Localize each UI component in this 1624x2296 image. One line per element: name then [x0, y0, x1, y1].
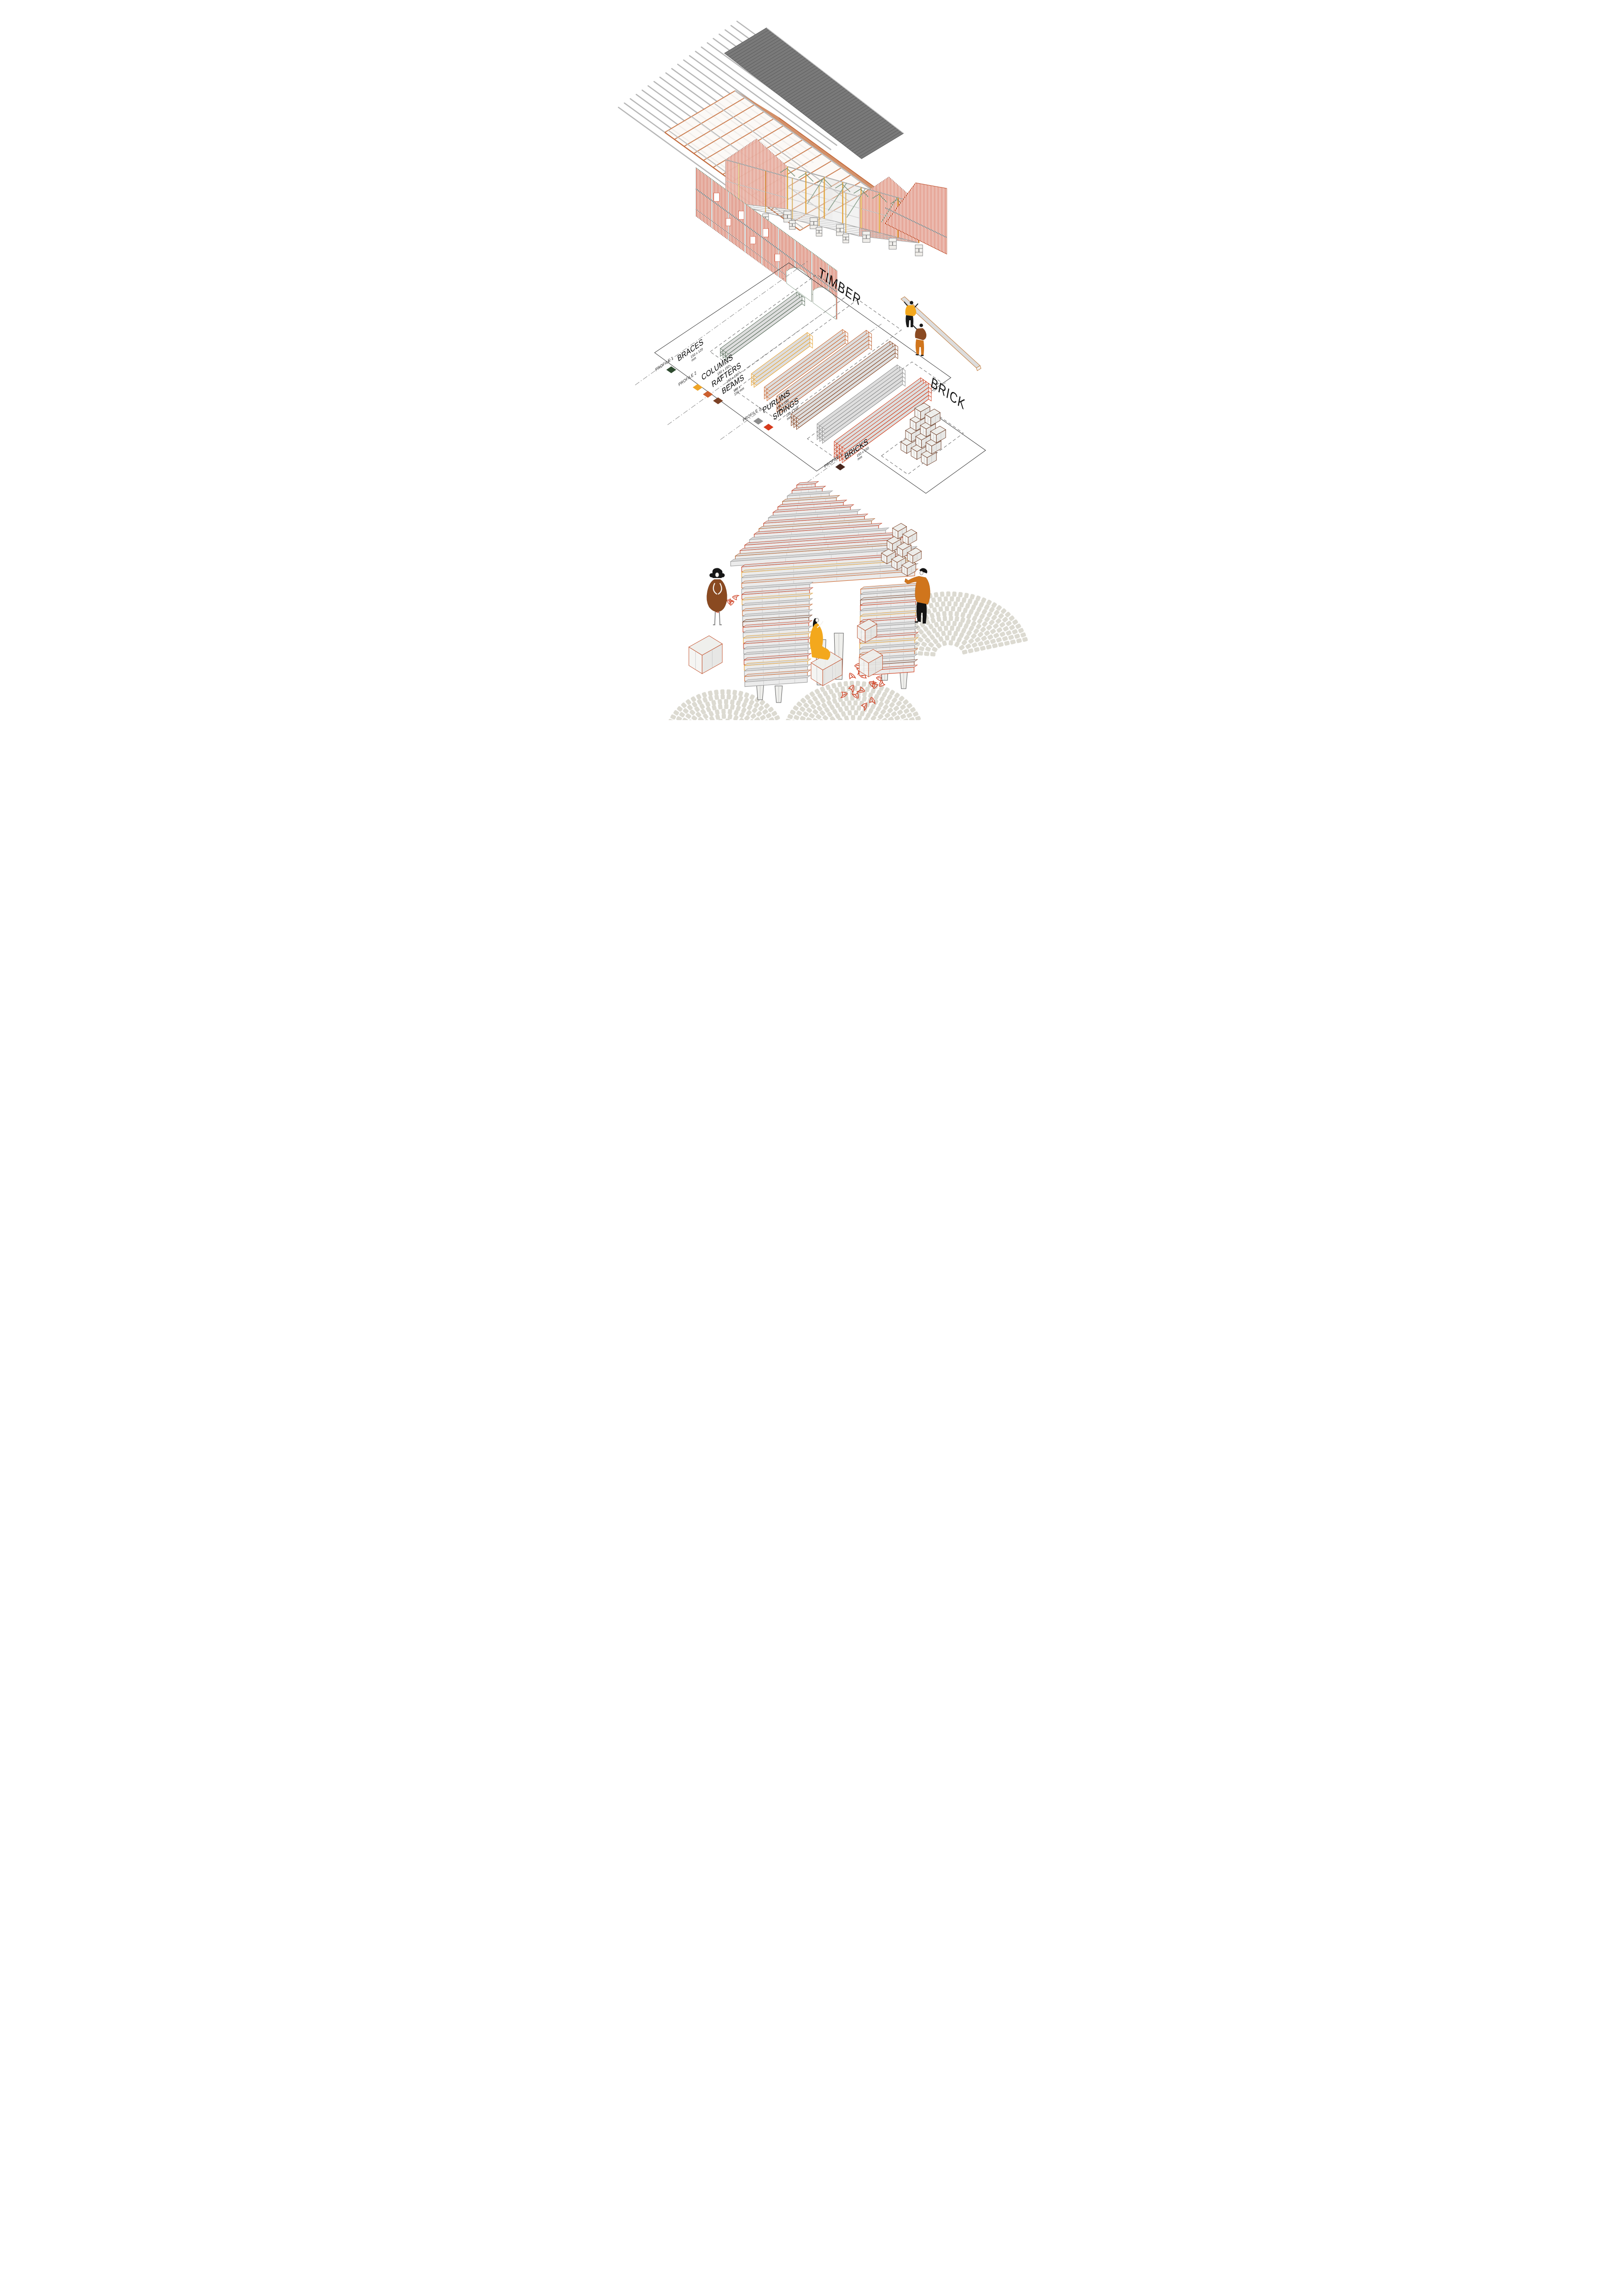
bricks-swatch: [835, 464, 845, 471]
purlins-swatch: [753, 418, 763, 425]
sitting-woman-yellow: [810, 618, 830, 660]
exploded-barn-axonometric: [618, 21, 947, 319]
reassembled-pavilion-scene: [668, 481, 1028, 720]
architecture-diagram-poster: TIMBER BRICK PROFILE 1 PROFILE 2 PROFILE…: [557, 0, 1067, 720]
beams-swatch: [713, 398, 723, 404]
workers-carrying-beam: [901, 297, 981, 371]
worker-brown: [911, 324, 926, 355]
diagram-canvas: [557, 0, 1067, 720]
columns-swatch: [693, 384, 702, 391]
standing-woman-brown: [707, 568, 727, 625]
sidings-swatch: [763, 424, 773, 431]
rafters-swatch: [703, 391, 712, 398]
